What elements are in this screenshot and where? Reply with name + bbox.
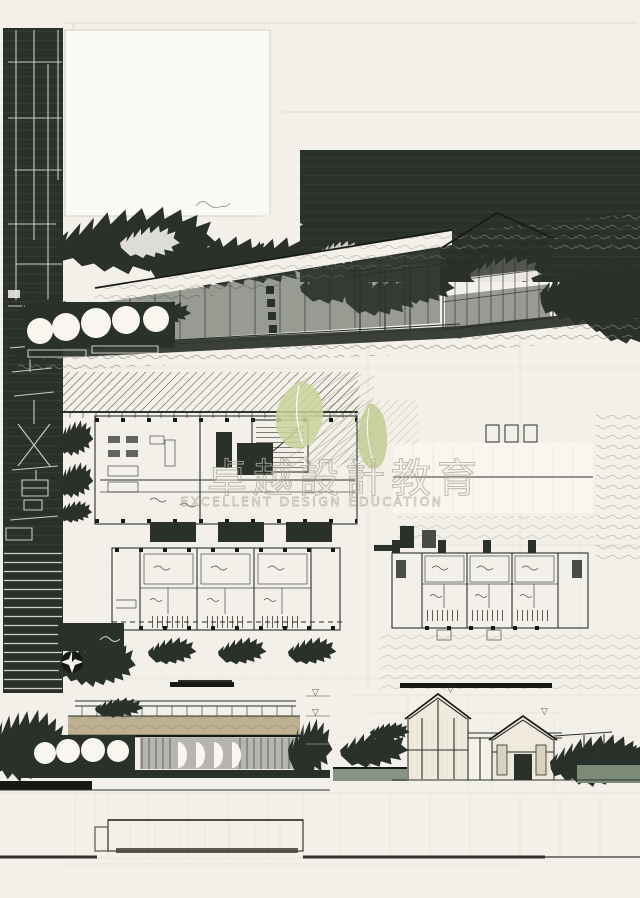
north-arrow-icon bbox=[61, 651, 83, 673]
presentation-board: 卓越設計教育 EXCELLENT DESIGN EDUCATION ▽ bbox=[0, 0, 640, 898]
water-level-icon: ▽ bbox=[541, 707, 548, 717]
board-canvas: 卓越設計教育 EXCELLENT DESIGN EDUCATION ▽ bbox=[0, 0, 640, 898]
watermark-text-en: EXCELLENT DESIGN EDUCATION bbox=[180, 494, 443, 509]
pencil-vegetation-right bbox=[596, 412, 640, 562]
water-level-icon: ▽ bbox=[312, 736, 319, 746]
blank-title-box bbox=[65, 30, 270, 216]
round-trees bbox=[18, 297, 191, 357]
water-level-icon: ▽ bbox=[447, 685, 454, 695]
water-level-icon: ▽ bbox=[312, 708, 319, 718]
water-level-icon: ▽ bbox=[366, 759, 373, 769]
pencil-ground-texture bbox=[380, 632, 640, 690]
water-level-icon: ▽ bbox=[596, 750, 603, 760]
water-level-icon: ▽ bbox=[312, 688, 319, 698]
